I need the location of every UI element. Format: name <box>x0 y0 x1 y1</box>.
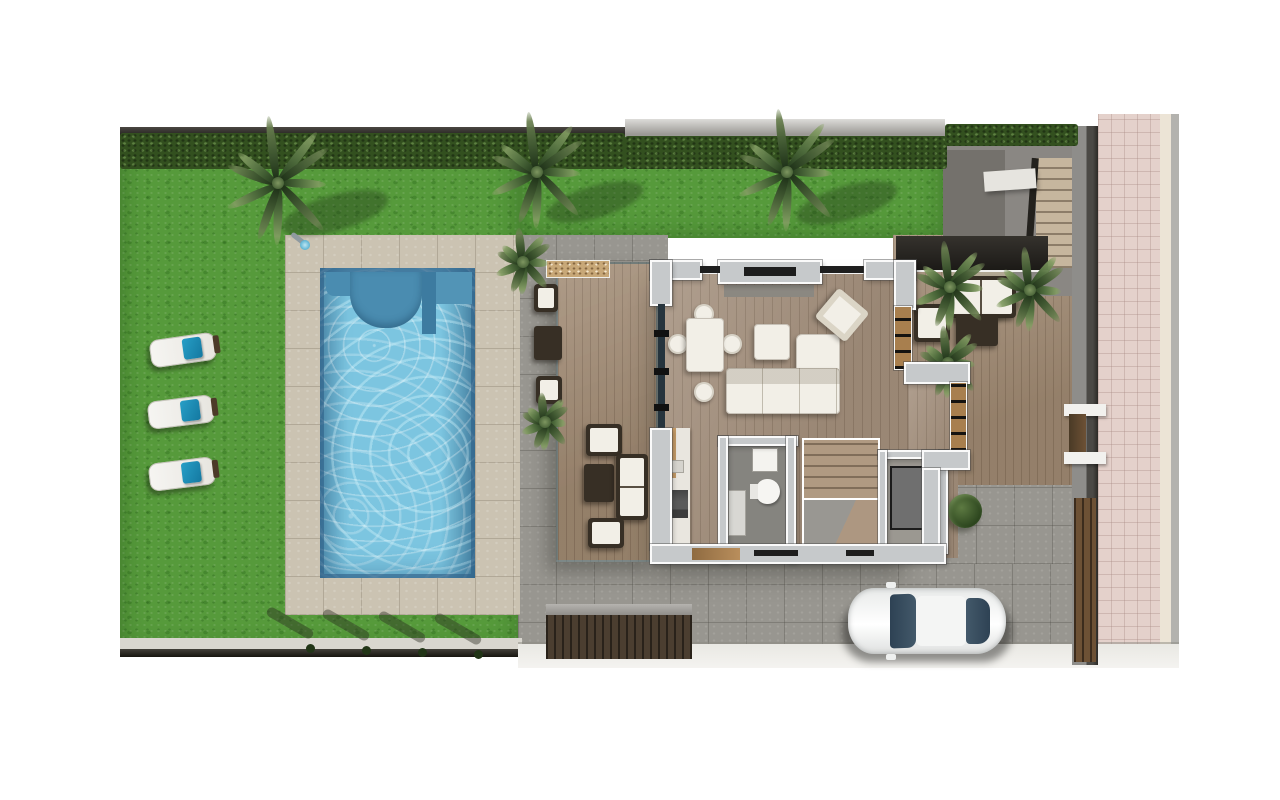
window-bottom-2 <box>846 550 874 556</box>
wall-jog-right <box>904 362 970 384</box>
edge-planter <box>474 650 483 659</box>
street <box>1098 114 1160 666</box>
bathroom-sink <box>752 448 778 472</box>
lounger-towel <box>181 461 202 484</box>
armchair-cushion <box>592 522 620 544</box>
patio-chair <box>534 284 558 312</box>
armchair-cushion <box>590 428 618 452</box>
car-windshield <box>890 594 916 649</box>
terrace-coffee-table <box>584 464 614 502</box>
wall-top-right-v <box>894 260 916 310</box>
tv-cabinet <box>724 285 814 297</box>
utility-wall-left <box>878 450 887 554</box>
pool-lane-divider <box>422 272 436 334</box>
glass-mullion <box>654 330 669 337</box>
floor-plan-canvas <box>0 0 1280 800</box>
toilet <box>756 479 780 504</box>
street-curb <box>1160 114 1171 666</box>
street-edge <box>1171 114 1179 666</box>
wall-left-lower <box>650 428 672 550</box>
window-right-wood-1 <box>894 306 912 370</box>
stair-landing-wedge <box>983 168 1036 192</box>
car-rear-glass <box>966 598 990 644</box>
palm-crown-center <box>781 166 793 178</box>
car-mirror <box>886 582 896 588</box>
lounger-towel <box>181 336 203 359</box>
pedestrian-gate-post-bottom <box>1064 452 1106 464</box>
dining-chair <box>668 334 688 354</box>
pedestrian-gate-door <box>1069 414 1086 454</box>
hedge-top-corner <box>945 124 1078 146</box>
window-bottom-1 <box>754 550 798 556</box>
coffee-table <box>754 324 790 360</box>
stair-landing <box>804 500 878 544</box>
toilet-tank <box>750 484 758 499</box>
window-top-2 <box>820 266 866 273</box>
terrace-sofa <box>616 454 648 520</box>
window-right-wood-2 <box>950 382 967 452</box>
fireplace-slot <box>744 267 796 276</box>
palm-crown-center <box>517 256 529 268</box>
bbq-counter <box>546 260 610 278</box>
interior-stairs <box>804 440 878 500</box>
outdoor-shower-head <box>300 240 310 250</box>
pool-corner-bench <box>436 272 472 304</box>
sofa-main <box>726 368 840 414</box>
shower-tray <box>728 490 746 536</box>
palm-crown-center <box>531 166 543 178</box>
sofa-cushions <box>620 458 644 516</box>
dining-chair <box>722 334 742 354</box>
dining-table <box>686 318 724 372</box>
palm-crown-center <box>944 281 956 293</box>
driveway-gate <box>1074 498 1096 662</box>
window-top-1 <box>700 266 720 273</box>
wall-top-left-v <box>650 260 672 306</box>
wall-corner-right-h <box>922 450 970 470</box>
car-roof <box>916 596 966 646</box>
wall-corner-right-v <box>922 468 940 552</box>
palm-crown-center <box>272 177 284 189</box>
edge-planter <box>362 646 371 655</box>
entry-door <box>692 548 740 560</box>
glass-mullion <box>654 368 669 375</box>
garden-bush <box>948 494 982 528</box>
terrace-armchair <box>588 518 624 548</box>
edge-planter <box>418 648 427 657</box>
boundary-wall-bottom <box>120 649 526 657</box>
car-mirror <box>886 654 896 660</box>
dining-chair <box>694 382 714 402</box>
glass-mullion <box>654 404 669 411</box>
basement-ramp <box>546 615 692 659</box>
palm-crown-center <box>539 416 551 428</box>
edge-planter <box>306 644 315 653</box>
patio-cube-seat <box>534 326 562 360</box>
terrace-armchair <box>586 424 622 456</box>
lounger-towel <box>180 399 201 422</box>
palm-crown-center <box>1024 284 1036 296</box>
chair-cushion <box>538 288 554 308</box>
